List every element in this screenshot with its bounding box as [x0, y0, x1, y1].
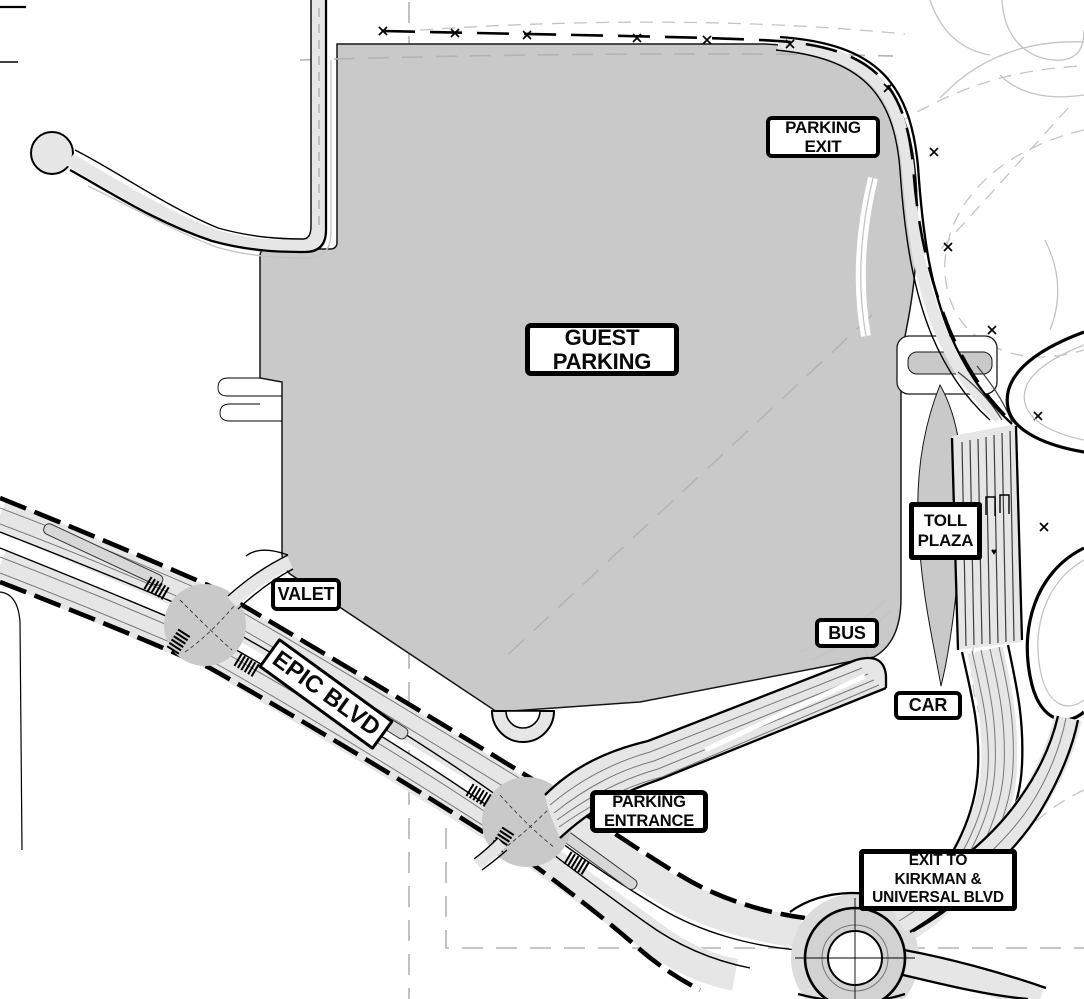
label-exit-to-kirkman-universal: EXIT TO KIRKMAN & UNIVERSAL BLVD [859, 849, 1017, 911]
label-toll-plaza: TOLL PLAZA [909, 502, 982, 560]
label-bus: BUS [815, 618, 879, 648]
site-plan-map: PARKING EXIT GUEST PARKING TOLL PLAZA VA… [0, 0, 1084, 999]
top-left-access-road [31, 0, 331, 258]
label-guest-parking: GUEST PARKING [525, 323, 679, 376]
label-parking-entrance: PARKING ENTRANCE [590, 790, 708, 833]
label-parking-exit: PARKING EXIT [766, 116, 880, 158]
teardrop-turnaround [492, 711, 554, 742]
label-car: CAR [894, 691, 962, 720]
heart-marker-icon: ♥ [991, 548, 997, 558]
label-valet: VALET [271, 578, 341, 611]
